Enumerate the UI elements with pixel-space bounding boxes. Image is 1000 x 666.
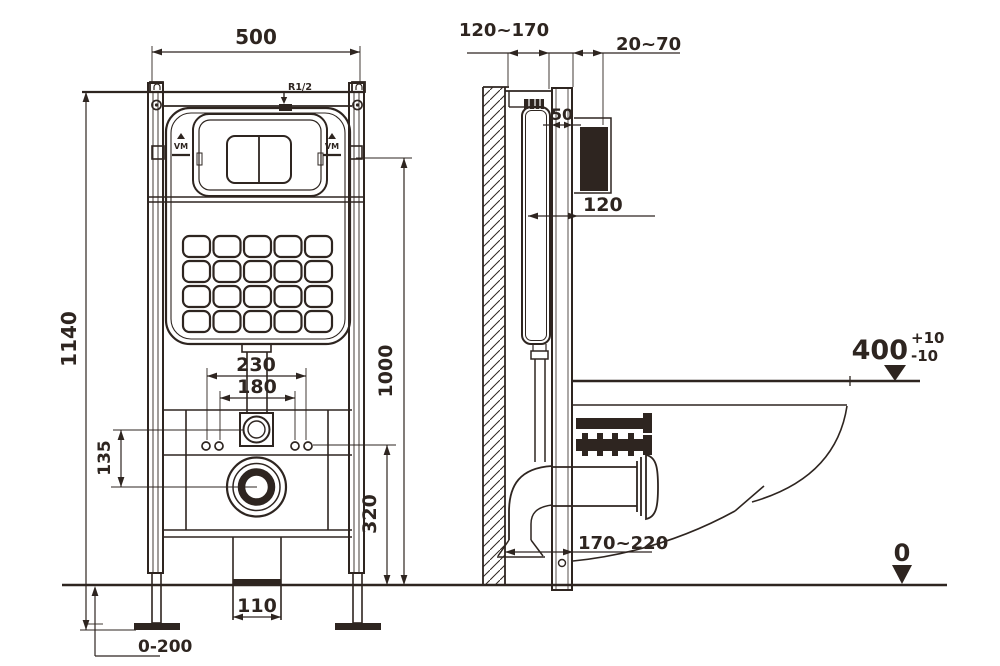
flush-plate-housing-side (574, 118, 611, 193)
datum-floor-level: 0 (892, 539, 912, 584)
logo-text: VM (325, 142, 339, 151)
datum-marker-icon (892, 565, 912, 584)
dim-label: 1000 (375, 345, 397, 398)
dim-label: 110 (237, 595, 277, 617)
outlet-connector (637, 455, 658, 519)
dim-frame-height: 1140 (57, 92, 136, 630)
dim-label: 120 (583, 194, 623, 216)
datum-rim-height: 400 +10 -10 (852, 329, 945, 381)
installation-drawing: VM VM R1/2 (0, 0, 1000, 666)
dim-inlet-to-outlet: 135 (95, 430, 257, 487)
dim-label: 0 (894, 539, 911, 567)
inlet-thread-label: R1/2 (288, 82, 312, 93)
dim-label: 1140 (57, 311, 81, 367)
front-view: VM VM R1/2 (82, 82, 381, 630)
dim-drain-pipe-width: 110 (233, 595, 281, 620)
logo-text: VM (174, 142, 188, 151)
dim-tank-depth: 120 (528, 194, 655, 219)
dim-foot-adjustment: 0-200 (87, 586, 193, 657)
brand-logo-left: VM (172, 133, 190, 155)
dim-label: 180 (237, 376, 277, 398)
dim-label: 0-200 (138, 637, 193, 657)
cistern-side (522, 107, 550, 462)
dim-label: 135 (95, 440, 115, 476)
dim-label: 230 (236, 354, 276, 376)
dim-tolerance-plus: +10 (911, 329, 944, 347)
dim-frame-profile-depth: 50 (543, 105, 581, 128)
dim-label: 320 (359, 494, 381, 534)
mounting-rods (576, 413, 652, 456)
tank-emboss-grid (183, 236, 332, 332)
dim-label: 170~220 (578, 533, 668, 554)
drawing-canvas: VM VM R1/2 (0, 0, 1000, 666)
dim-outlet-distance: 170~220 (505, 533, 668, 555)
wall-section (483, 87, 509, 585)
dim-label: 400 (852, 335, 908, 366)
dim-label: 20~70 (616, 34, 681, 55)
down-arrow-icon (281, 97, 287, 104)
dim-outlet-height: 320 (313, 445, 396, 585)
dim-label: 50 (551, 105, 573, 124)
dim-plate-box-depth: 20~70 (573, 34, 681, 125)
dim-tolerance-minus: -10 (911, 347, 938, 365)
flush-plate (193, 114, 327, 196)
dim-frame-width: 500 (152, 25, 360, 84)
dim-label: 500 (235, 25, 277, 49)
dim-label: 120~170 (459, 20, 549, 41)
brand-logo-right: VM (323, 133, 341, 155)
frame-profile-side (552, 88, 572, 590)
datum-marker-icon (884, 365, 906, 381)
